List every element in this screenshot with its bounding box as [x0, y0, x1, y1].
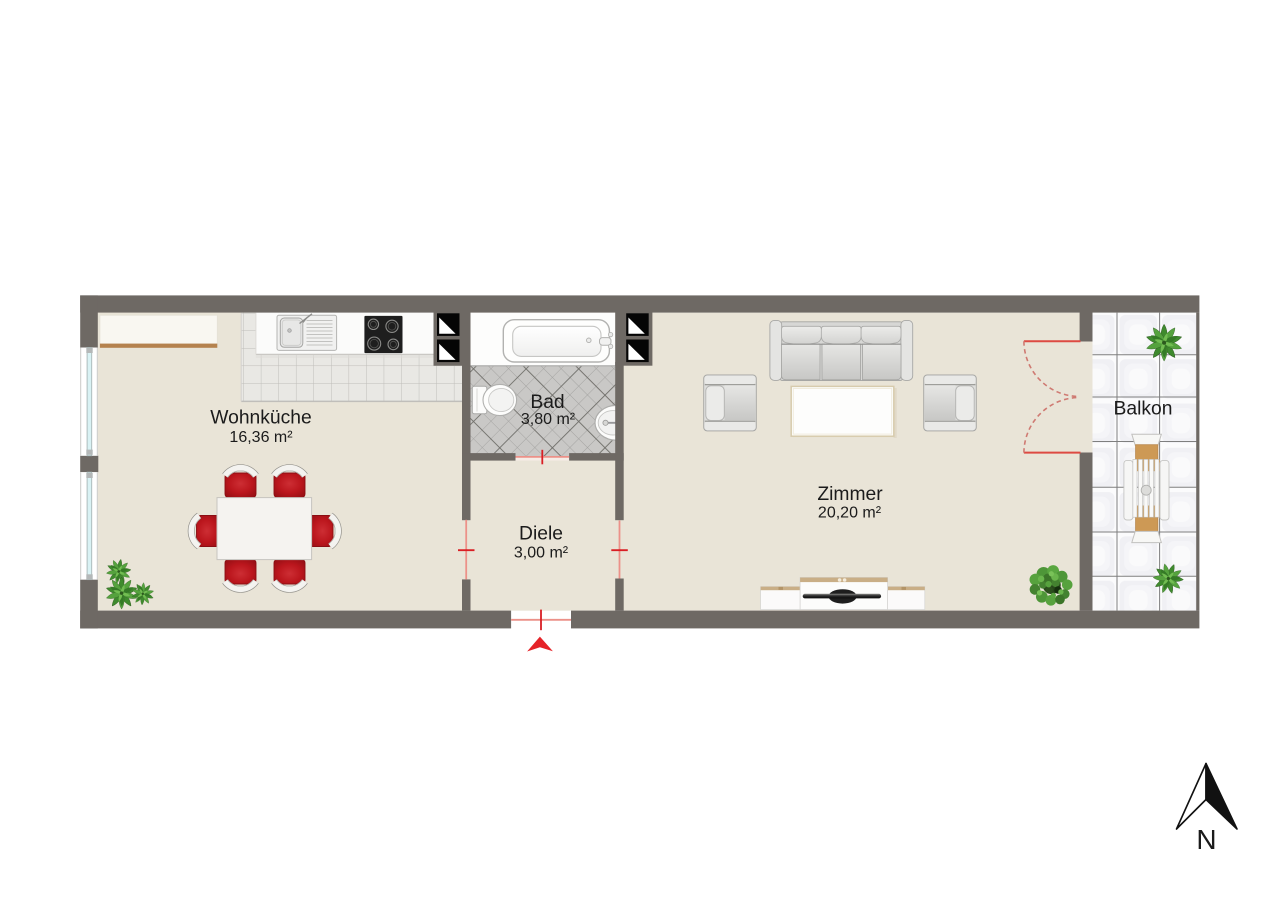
svg-text:3,80 m²: 3,80 m²: [521, 411, 576, 428]
svg-text:Balkon: Balkon: [1114, 399, 1173, 420]
svg-text:Wohnküche: Wohnküche: [210, 408, 311, 429]
svg-text:Diele: Diele: [519, 524, 563, 545]
svg-text:N: N: [1196, 824, 1216, 855]
svg-text:16,36 m²: 16,36 m²: [229, 429, 293, 446]
svg-text:20,20 m²: 20,20 m²: [818, 505, 882, 522]
svg-text:Zimmer: Zimmer: [817, 484, 883, 505]
svg-text:Bad: Bad: [530, 392, 564, 413]
svg-text:3,00 m²: 3,00 m²: [514, 545, 569, 562]
